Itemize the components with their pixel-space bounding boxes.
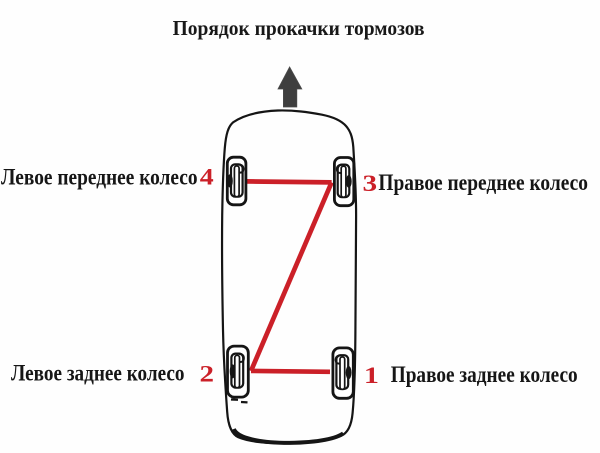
svg-text:Левое заднее колесо: Левое заднее колесо: [11, 361, 185, 386]
svg-text:Левое переднее колесо: Левое переднее колесо: [1, 164, 198, 189]
svg-text:Правое заднее колесо: Правое заднее колесо: [391, 362, 578, 387]
svg-text:4: 4: [200, 164, 214, 190]
svg-text:3: 3: [363, 170, 378, 197]
svg-text:1: 1: [364, 362, 379, 388]
svg-text:Правое переднее колесо: Правое переднее колесо: [378, 170, 588, 195]
svg-text:2: 2: [200, 361, 214, 387]
svg-text:Порядок прокачки тормозов: Порядок прокачки тормозов: [173, 16, 425, 40]
